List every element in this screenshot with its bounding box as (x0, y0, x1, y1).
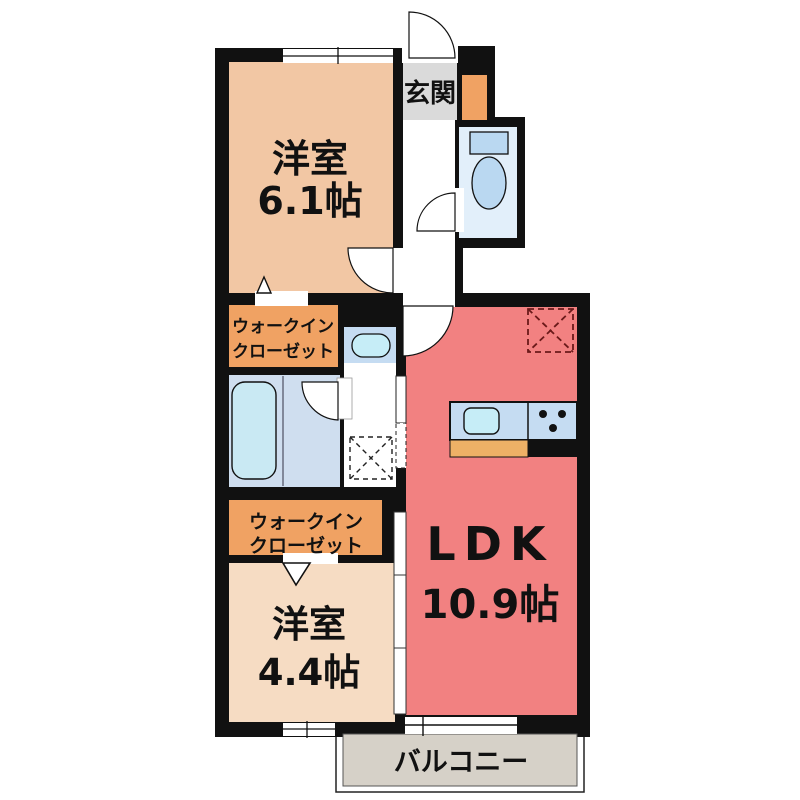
closet-2-label-line2: クローゼット (249, 534, 363, 557)
ldk-size: 10.9帖 (421, 582, 560, 628)
room-6-1-label: 洋室 (272, 137, 348, 181)
shoe-cabinet-icon (462, 75, 487, 120)
floor-plan-canvas: 洋室 6.1帖 玄関 ウォークイン クローゼット LDK 10.9帖 ウォークイ… (0, 0, 800, 800)
sliding-door-icon (396, 376, 406, 423)
counter-front (450, 440, 528, 457)
toilet-icon (470, 132, 508, 209)
balcony-label: バルコニー (394, 747, 528, 778)
room-4-4-size: 4.4帖 (258, 651, 361, 694)
room-4-4-label: 洋室 (272, 603, 346, 646)
ldk-floor (406, 307, 577, 715)
bathroom-doorway (337, 378, 352, 419)
entrance-label: 玄関 (404, 78, 456, 109)
kitchen-counter (450, 402, 577, 457)
closet-2-label-line1: ウォークイン (249, 511, 363, 533)
closet-1-label-line2: クローゼット (232, 341, 334, 362)
bathtub-icon (232, 382, 276, 479)
sliding-door-pocket (396, 423, 406, 468)
kitchen-wall-stub (528, 440, 577, 457)
kitchen-sink-icon (464, 408, 499, 434)
room-6-1-doorway (393, 248, 404, 293)
floor-plan-drawing: 洋室 6.1帖 玄関 ウォークイン クローゼット LDK 10.9帖 ウォークイ… (0, 0, 800, 800)
ldk-doorway (403, 293, 455, 307)
sliding-partition-icon (394, 512, 406, 714)
room-6-1-size: 6.1帖 (257, 179, 362, 223)
closet-1-label-line1: ウォークイン (232, 317, 334, 337)
ldk-label: LDK (426, 517, 553, 571)
washbasin-icon (352, 334, 390, 357)
